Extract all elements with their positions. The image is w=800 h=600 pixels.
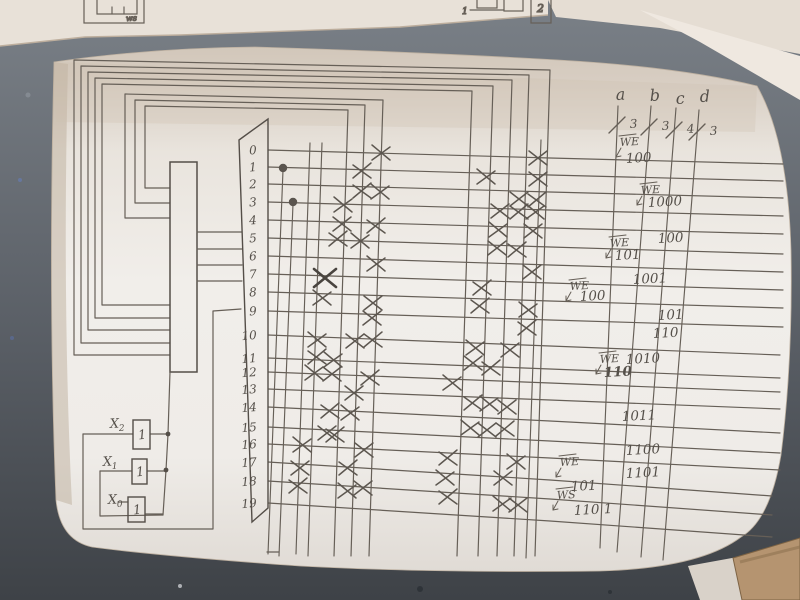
row-number-label: 6 bbox=[249, 249, 258, 264]
row-number-label: 1 bbox=[249, 160, 258, 174]
row-number-label: 8 bbox=[249, 285, 258, 300]
row-number-label: 11 bbox=[241, 351, 257, 366]
bus-name-label: d bbox=[699, 86, 710, 106]
desk-speck bbox=[10, 336, 14, 340]
desk-speck bbox=[18, 178, 22, 182]
annotation-binary-code: 100 bbox=[657, 230, 684, 247]
row-number-label: 10 bbox=[241, 328, 258, 343]
desk-speck bbox=[26, 93, 31, 98]
row-tap-dot bbox=[279, 164, 287, 172]
row-number-label: 13 bbox=[241, 382, 258, 397]
row-number-label: 7 bbox=[249, 267, 258, 282]
annotation-binary-code: 1001 bbox=[632, 270, 667, 288]
row-number-label: 19 bbox=[241, 496, 258, 511]
annotation-signal-label: WE bbox=[619, 135, 639, 149]
annotation-signal-label: WS bbox=[556, 488, 576, 502]
bus-name-label: b bbox=[649, 85, 660, 105]
bus-width-number: 3 bbox=[661, 119, 670, 133]
annotation-binary-code: 110 bbox=[652, 325, 679, 342]
gate-input-label-subscript: 0 bbox=[117, 500, 124, 510]
scene-svg: ws120123456789101112131415161718191X21X1… bbox=[0, 0, 800, 600]
row-number-label: 5 bbox=[249, 231, 258, 245]
row-number-label: 14 bbox=[241, 400, 257, 415]
fragment-ws-label: ws bbox=[126, 14, 137, 23]
bus-width-number: 3 bbox=[709, 124, 718, 138]
annotation-binary-code: 101 bbox=[657, 307, 684, 324]
row-tap-dot bbox=[289, 198, 297, 206]
gate-input-label-subscript: 1 bbox=[112, 462, 118, 472]
wire-junction-dot bbox=[164, 468, 169, 473]
annotation-binary-code: 1100 bbox=[625, 441, 661, 459]
not-gate-symbol: 1 bbox=[132, 503, 142, 519]
annotation-binary-code: 110 1 bbox=[573, 501, 612, 519]
desk-speck bbox=[608, 590, 612, 594]
row-number-label: 3 bbox=[249, 195, 258, 210]
not-gate-symbol: 1 bbox=[137, 428, 147, 444]
annotation-binary-code: 100 bbox=[625, 150, 652, 167]
gate-input-label-subscript: 2 bbox=[118, 424, 126, 434]
bus-width-number: 4 bbox=[685, 122, 694, 136]
desk-speck bbox=[178, 584, 182, 588]
row-number-label: 2 bbox=[248, 177, 258, 192]
row-number-label: 9 bbox=[249, 304, 258, 319]
annotation-binary-code: 100 bbox=[579, 288, 606, 305]
row-number-label: 0 bbox=[249, 143, 258, 158]
annotation-binary-code: 101 bbox=[614, 247, 641, 264]
bus-name-label: c bbox=[675, 89, 685, 108]
row-number-label: 18 bbox=[241, 474, 258, 489]
annotation-signal-label: WE bbox=[559, 455, 579, 469]
bus-width-number: 3 bbox=[629, 117, 638, 131]
row-number-label: 4 bbox=[248, 213, 258, 228]
bus-name-label: a bbox=[615, 85, 626, 104]
annotation-binary-code: 1011 bbox=[621, 407, 656, 425]
fragment-wire-label: 1 bbox=[462, 7, 468, 17]
photo-of-hand-drawn-rom-matrix-diagram: ws120123456789101112131415161718191X21X1… bbox=[0, 0, 800, 600]
wire-junction-dot bbox=[166, 432, 171, 437]
annotation-binary-code: 1000 bbox=[647, 193, 683, 211]
row-number-label: 12 bbox=[241, 365, 257, 380]
annotation-binary-code: 110 bbox=[603, 364, 633, 381]
not-gate-symbol: 1 bbox=[135, 465, 145, 481]
desk-speck bbox=[417, 586, 423, 592]
annotation-binary-code: 1101 bbox=[625, 464, 660, 482]
fragment-2-label: 2 bbox=[536, 2, 544, 15]
